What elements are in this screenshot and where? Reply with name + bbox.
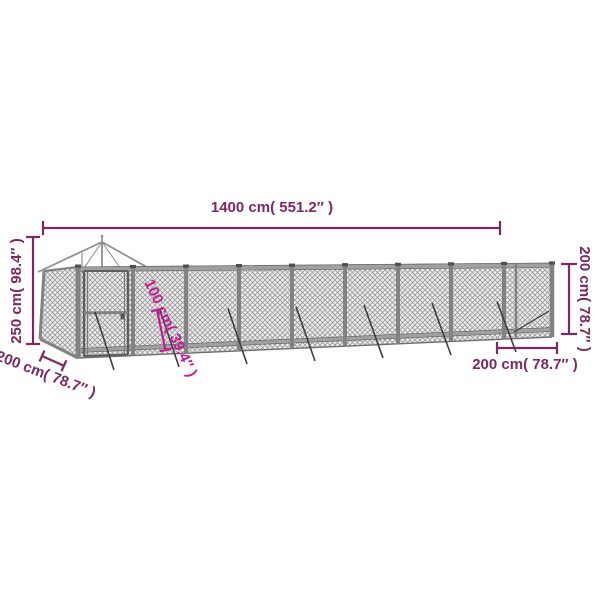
post-cap	[501, 262, 507, 265]
dim-label-right-height: 200 cm( 78.7″ )	[576, 246, 593, 352]
post-cap	[448, 262, 454, 265]
dimension-bottom-right-depth: 200 cm( 78.7″ )	[472, 342, 578, 373]
door-handle	[121, 314, 125, 320]
fence-left-side-panel	[40, 267, 78, 358]
dimension-left-height: 250 cm( 98.4″ )	[8, 237, 40, 344]
post-cap	[75, 265, 81, 268]
dim-label-left-height: 250 cm( 98.4″ )	[8, 238, 25, 344]
fence-mesh-panel	[78, 263, 552, 358]
dimension-diagram: 1400 cm( 551.2″ ) 250 cm( 98.4″ ) 200 cm…	[0, 0, 600, 600]
post-cap	[289, 264, 295, 267]
post-cap	[342, 263, 348, 266]
dimension-right-height: 200 cm( 78.7″ )	[561, 246, 593, 352]
post-cap	[183, 265, 189, 268]
side-mesh-panel	[40, 267, 78, 358]
dim-label-bottom-right-depth: 200 cm( 78.7″ )	[472, 356, 578, 373]
roof-apex-finial	[101, 235, 104, 238]
post-cap	[395, 263, 401, 266]
post-cap	[130, 265, 136, 268]
kennel-diagram-canvas: 1400 cm( 551.2″ ) 250 cm( 98.4″ ) 200 cm…	[0, 0, 600, 600]
fence-front	[78, 263, 552, 358]
post-cap	[549, 261, 555, 264]
post-cap	[236, 264, 242, 267]
door-mid-rail	[84, 313, 128, 314]
dim-label-top-length: 1400 cm( 551.2″ )	[211, 199, 333, 216]
dimension-top-length: 1400 cm( 551.2″ )	[43, 199, 500, 235]
